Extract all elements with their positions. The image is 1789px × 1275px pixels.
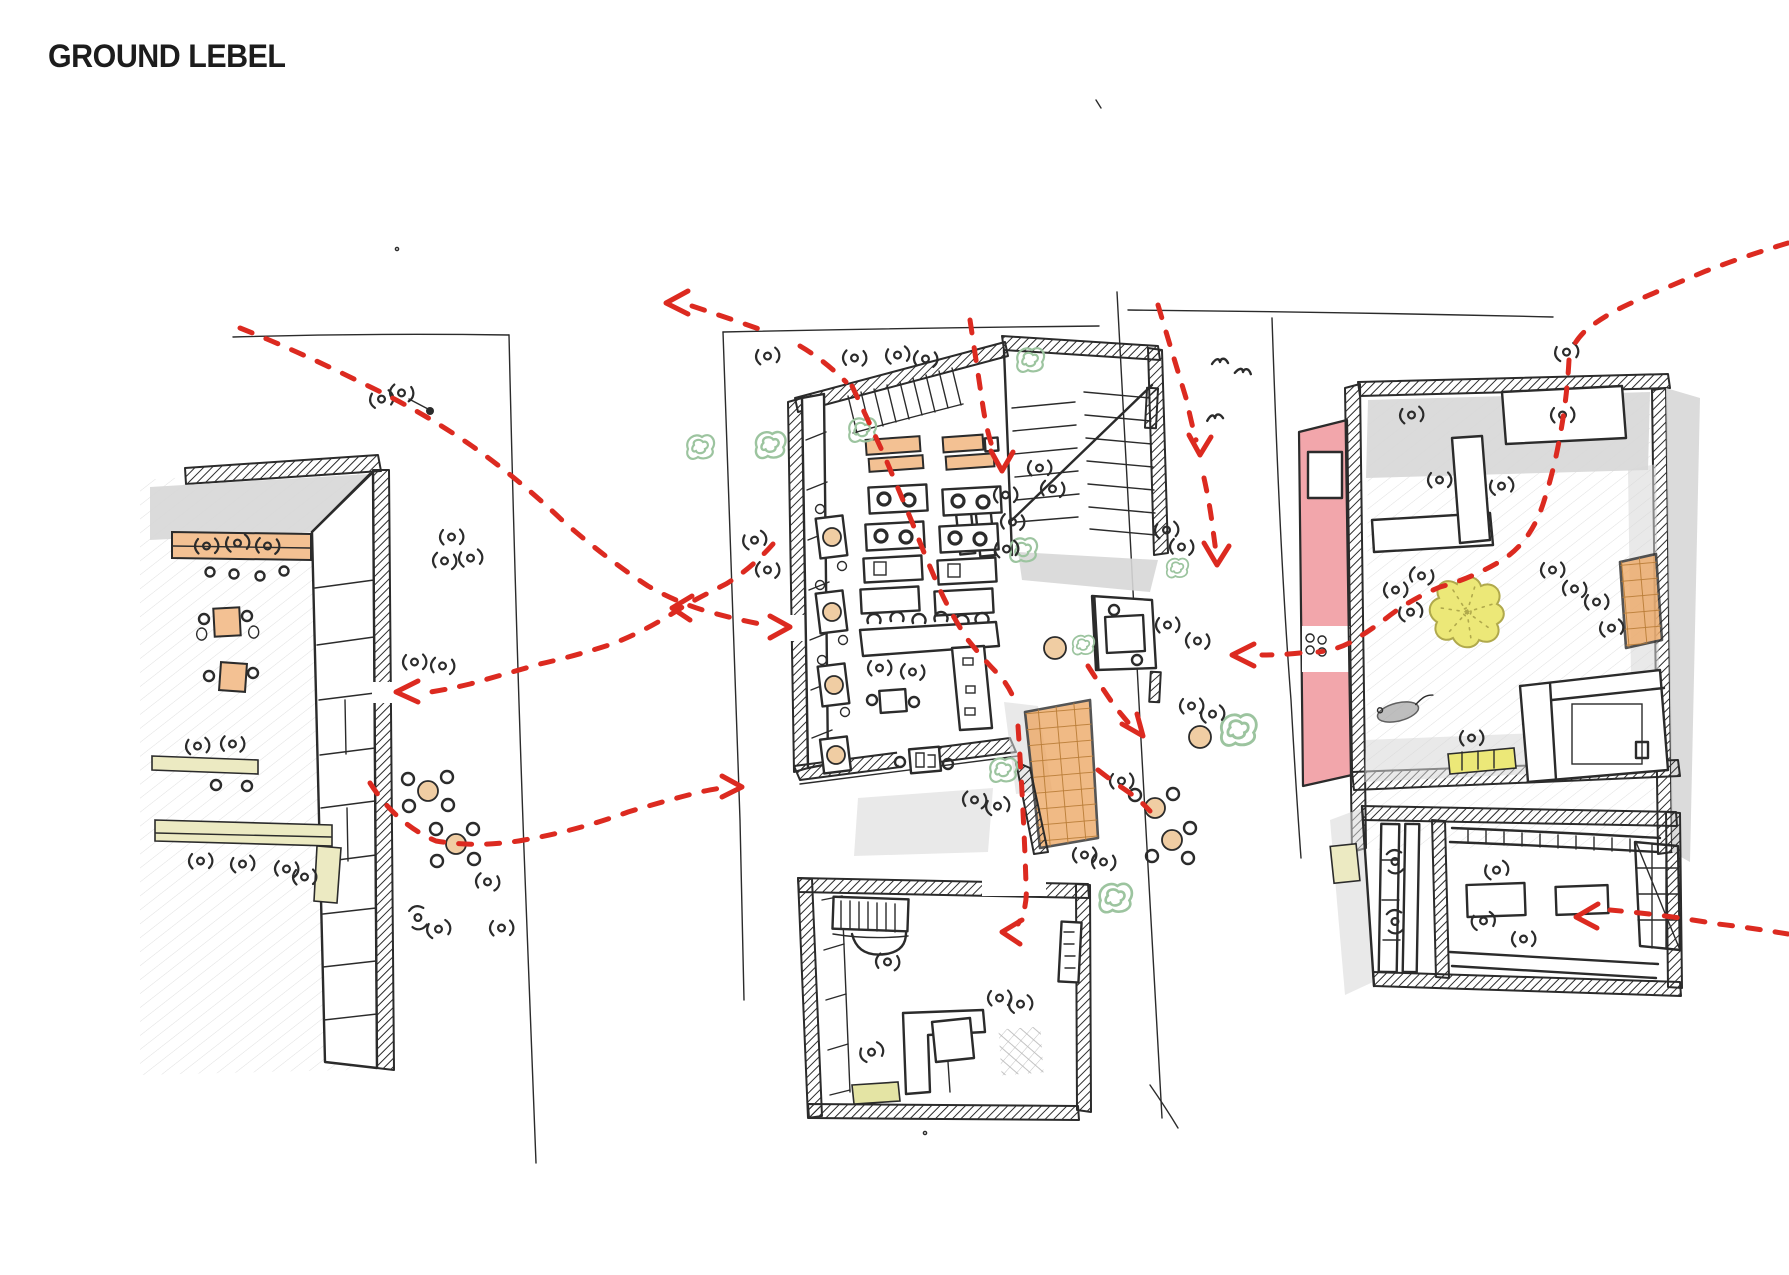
cafe-table [213,607,240,636]
hall-small-table [879,689,906,713]
person-icon [875,953,901,972]
wing-table [1105,615,1145,653]
cafe-table [219,662,247,692]
person-icon [742,530,768,550]
desk [903,1010,985,1094]
person-icon [440,530,463,545]
people-group-icon [402,771,454,812]
sketch-canvas [0,0,1789,1275]
person-icon [1180,699,1203,714]
wing-landing [1018,552,1158,592]
person-icon [432,552,457,570]
lower-north-door [982,876,1046,896]
pink-wall-door [1302,626,1350,672]
bird-icon [1207,414,1223,421]
person-icon [403,655,426,670]
staircase [1012,392,1156,535]
crosshatch-patch [998,1027,1043,1076]
bird-icon [1212,359,1228,364]
l-bench [1452,436,1490,543]
person-icon [843,350,867,367]
hall-sofas [866,435,999,472]
hall-tables [860,485,1001,616]
person-icon [868,661,891,676]
center-building-lower [798,876,1091,1120]
person-icon [900,663,925,680]
bird-icon [1235,368,1252,375]
person-icon [458,549,483,567]
person-icon [858,1041,885,1063]
person-icon [1512,932,1535,947]
person-icon [490,921,513,936]
cafe-long-table [152,756,258,774]
person-icon [1185,632,1210,649]
lower-west-wall [798,878,822,1118]
person-icon [755,347,780,364]
wall-panel [1058,922,1081,983]
person-icon [1484,860,1510,880]
left-building-east-door [372,682,396,703]
shrub-icon [1221,715,1256,746]
person-icon [409,905,428,931]
left-building [140,455,396,1075]
meeting-table [1556,885,1609,915]
person-icon [1554,342,1580,362]
pink-wall-window [1308,452,1342,498]
shrub-icon [1100,884,1132,912]
hall-small-table [909,747,941,774]
cafe-long-table [314,846,341,903]
person-icon [1200,705,1225,723]
dog-icon [426,407,434,415]
lower-east-wall [1076,884,1091,1112]
circulation-arrow-icon [1002,920,1022,944]
circulation-arrow-icon [1189,435,1211,455]
dog-leash [409,399,428,409]
bench-section [1379,824,1420,972]
person-icon [755,561,780,578]
person-icon [988,991,1011,1006]
circulation-arrow-icon [396,681,418,702]
lower-south-wall [808,1104,1079,1120]
circulation-arrow-icon [1232,644,1254,666]
west-face-panel [1330,844,1360,884]
person-icon [1169,538,1194,555]
planter-icon [1189,726,1211,748]
sketch-page: GROUND LEBEL [0,0,1789,1275]
orange-grid-panel [1620,554,1662,648]
person-icon [885,346,910,364]
person-icon [475,872,501,892]
orange-tile-area [1016,700,1098,854]
left-building-east-wall [373,470,394,1070]
person-icon [430,657,455,675]
person-icon [1091,853,1116,871]
shrub-icon [687,435,714,459]
floor-mat [852,1082,900,1104]
shrub-icon [756,432,786,458]
shrub-icon [1073,636,1095,655]
person-icon [426,919,452,939]
person-icon [1156,618,1179,633]
bench-divider-wall [1432,820,1449,978]
hall-west-wall-face [802,394,828,768]
right-building-upper [1299,374,1700,862]
shrub-icon [1167,559,1189,578]
kiosk-box [1520,670,1668,782]
people-group-icon [1129,788,1196,864]
circulation-arrow-icon [666,291,688,314]
meeting-table [1466,883,1525,917]
planter-icon [1044,637,1066,659]
